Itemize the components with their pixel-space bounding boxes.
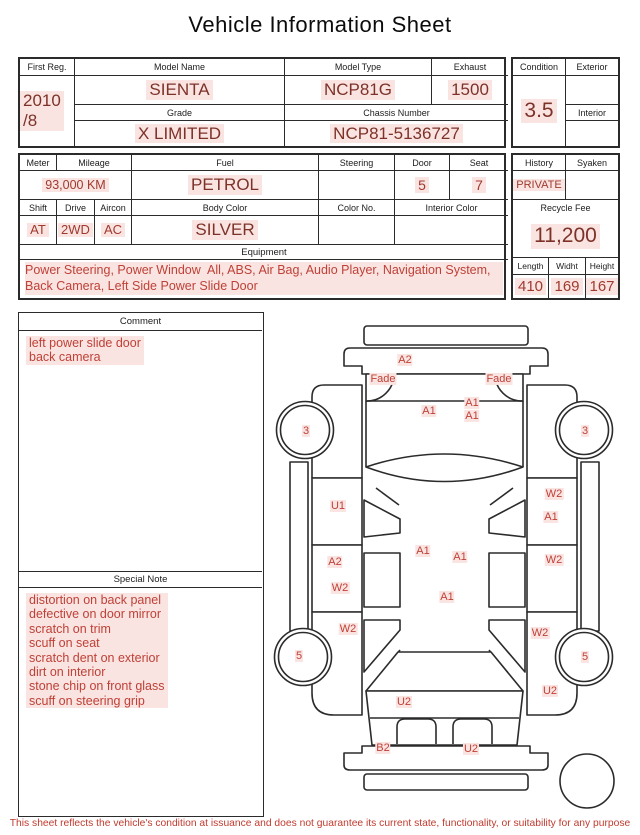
tailgate <box>366 691 523 745</box>
right-taillamp-cutout <box>453 719 492 744</box>
model-type-value: NCP81G <box>285 76 432 105</box>
front-right-wheel <box>556 402 613 459</box>
special-note-header: Special Note <box>19 571 262 588</box>
damage-label: U2 <box>463 743 479 755</box>
first-reg-header: First Reg. <box>20 59 75 76</box>
left-roof-chamfer <box>376 488 399 505</box>
front-left-wheel <box>277 402 334 459</box>
damage-label: A1 <box>543 511 558 523</box>
chassis-number-header: Chassis Number <box>285 105 508 121</box>
disclaimer-text: This sheet reflects the vehicle's condit… <box>0 818 640 829</box>
steering-header: Steering <box>319 155 395 171</box>
right-front-fender <box>527 385 577 478</box>
right-sill <box>581 462 599 631</box>
windshield <box>366 454 523 482</box>
rear-bumper <box>344 746 548 770</box>
damage-label: A1 <box>452 551 467 563</box>
damage-label: 5 <box>295 650 303 662</box>
damage-label: U1 <box>330 500 346 512</box>
identity-table: First Reg. 2010 /8 Model Name SIENTA Gra… <box>18 57 506 148</box>
right-arch-arc <box>495 374 523 401</box>
damage-label: U2 <box>542 685 558 697</box>
color-no-value <box>319 216 395 245</box>
right-d-pillar <box>489 650 519 688</box>
grade-header: Grade <box>75 105 285 121</box>
damage-label: A2 <box>397 354 412 366</box>
spec-table: Meter Mileage 93,000 KM Fuel PETROL Stee… <box>18 153 506 300</box>
rear-right-wheel <box>556 629 613 686</box>
interior-value <box>566 121 618 146</box>
right-quarter-panel <box>527 612 577 715</box>
left-quarter-panel <box>312 612 362 715</box>
comment-header: Comment <box>19 313 262 331</box>
notes-panel: Comment left power slide door back camer… <box>18 312 264 817</box>
equipment-header: Equipment <box>20 245 508 260</box>
condition-value: 3.5 <box>513 76 566 146</box>
comment-content: left power slide door back camera <box>19 331 262 571</box>
seat-header: Seat <box>450 155 508 171</box>
rear-bumper-lip <box>364 774 528 790</box>
exterior-header: Exterior <box>566 59 618 76</box>
recycle-fee-value: 11,200 <box>513 216 618 258</box>
aircon-header: Aircon <box>95 200 132 216</box>
condition-table: Condition 3.5 Exterior Interior <box>511 57 620 148</box>
mileage-value: 93,000 KM <box>20 171 132 200</box>
drive-header: Drive <box>57 200 95 216</box>
damage-label: W2 <box>545 554 564 566</box>
widht-header: Widht <box>549 258 586 275</box>
exterior-value <box>566 76 618 105</box>
equipment-value: Power Steering, Power Window All, ABS, A… <box>20 260 508 298</box>
spare-wheel <box>560 754 614 808</box>
height-header: Height <box>586 258 618 275</box>
interior-color-value <box>395 216 508 245</box>
left-slide-door <box>312 545 362 612</box>
damage-label: A1 <box>421 405 436 417</box>
left-taillamp-cutout <box>397 719 436 744</box>
left-front-window <box>364 500 400 537</box>
damage-label: W2 <box>531 627 550 639</box>
left-slide-window <box>364 553 400 607</box>
left-sill <box>290 462 308 631</box>
damage-label: 3 <box>302 425 310 437</box>
damage-label: A1 <box>439 591 454 603</box>
interior-color-header: Interior Color <box>395 200 508 216</box>
damage-label: U2 <box>396 696 412 708</box>
syaken-header: Syaken <box>566 155 618 171</box>
damage-label: W2 <box>331 582 350 594</box>
damage-label: W2 <box>545 488 564 500</box>
model-type-header: Model Type <box>285 59 432 76</box>
rear-window <box>366 652 523 691</box>
damage-label: A1 <box>415 545 430 557</box>
right-roof-chamfer <box>490 488 513 505</box>
left-d-pillar <box>370 650 400 688</box>
syaken-value <box>566 171 618 200</box>
damage-label: A2 <box>327 556 342 568</box>
body-color-value: SILVER <box>132 216 319 245</box>
damage-label: 5 <box>581 651 589 663</box>
front-bumper-lip <box>364 326 528 345</box>
length-value: 410 <box>513 275 549 298</box>
front-bumper <box>344 348 548 374</box>
door-value: 5 <box>395 171 450 200</box>
body-color-header: Body Color <box>132 200 319 216</box>
history-value: PRIVATE <box>513 171 566 200</box>
meter-header: Meter <box>20 155 57 171</box>
right-front-window <box>489 500 525 537</box>
history-header: History <box>513 155 566 171</box>
damage-label: Fade <box>485 373 512 385</box>
page-title: Vehicle Information Sheet <box>0 12 640 38</box>
condition-header: Condition <box>513 59 566 76</box>
right-front-door <box>527 478 577 545</box>
model-name-value: SIENTA <box>75 76 285 105</box>
seat-value: 7 <box>450 171 508 200</box>
length-header: Length <box>513 258 549 275</box>
exhaust-value: 1500 <box>432 76 508 105</box>
damage-label: A1 <box>464 397 479 409</box>
shift-value: AT <box>20 216 57 245</box>
rear-left-wheel <box>275 629 332 686</box>
left-front-fender <box>312 385 362 478</box>
right-slide-window <box>489 553 525 607</box>
damage-label: Fade <box>369 373 396 385</box>
chassis-number-value: NCP81-5136727 <box>285 121 508 146</box>
damage-label: W2 <box>339 623 358 635</box>
color-no-header: Color No. <box>319 200 395 216</box>
left-front-door <box>312 478 362 545</box>
left-quarter-window <box>364 620 400 672</box>
steering-value <box>319 171 395 200</box>
damage-label: 3 <box>581 425 589 437</box>
recycle-fee-header: Recycle Fee <box>513 200 618 216</box>
model-name-header: Model Name <box>75 59 285 76</box>
exhaust-header: Exhaust <box>432 59 508 76</box>
height-value: 167 <box>586 275 618 298</box>
hood-cowl <box>366 374 523 401</box>
aircon-value: AC <box>95 216 132 245</box>
drive-value: 2WD <box>57 216 95 245</box>
history-table: History PRIVATE Syaken Recycle Fee 11,20… <box>511 153 620 300</box>
mileage-header: Mileage <box>57 155 132 171</box>
grade-value: X LIMITED <box>75 121 285 146</box>
fuel-header: Fuel <box>132 155 319 171</box>
first-reg-value: 2010 /8 <box>20 76 75 146</box>
door-header: Door <box>395 155 450 171</box>
damage-label: B2 <box>375 742 390 754</box>
right-slide-door <box>527 545 577 612</box>
car-outline-svg <box>270 315 640 815</box>
fuel-value: PETROL <box>132 171 319 200</box>
interior-header: Interior <box>566 105 618 121</box>
shift-header: Shift <box>20 200 57 216</box>
left-arch-arc <box>366 374 394 401</box>
right-quarter-window <box>489 620 525 672</box>
widht-value: 169 <box>549 275 586 298</box>
vehicle-information-sheet: Vehicle Information Sheet First Reg. 201… <box>0 0 640 835</box>
special-note-content: distortion on back panel defective on do… <box>19 588 262 815</box>
damage-label: A1 <box>464 410 479 422</box>
